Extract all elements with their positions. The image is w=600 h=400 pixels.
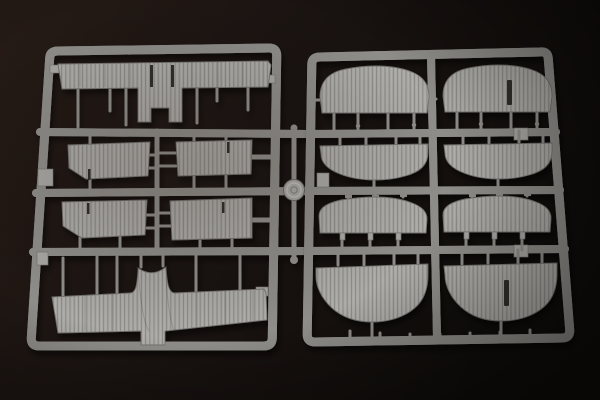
vignette-overlay [0, 0, 600, 400]
sprue-photo [0, 0, 600, 400]
